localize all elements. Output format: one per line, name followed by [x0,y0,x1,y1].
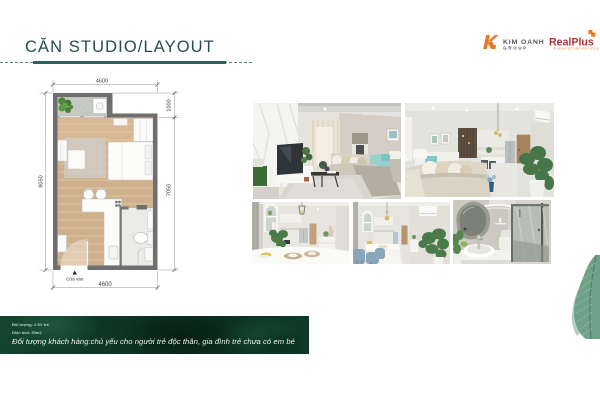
svg-text:Cửa vào: Cửa vào [66,276,84,282]
svg-text:4600: 4600 [98,282,112,288]
svg-text:1000: 1000 [167,99,173,111]
svg-text:GROUP: GROUP [503,46,528,51]
svg-text:8050: 8050 [39,175,45,187]
svg-text:7050: 7050 [167,184,173,196]
svg-text:IN ARCHITECTURE WITH SOCIALS: IN ARCHITECTURE WITH SOCIALS [553,48,599,51]
svg-text:4600: 4600 [96,79,108,85]
